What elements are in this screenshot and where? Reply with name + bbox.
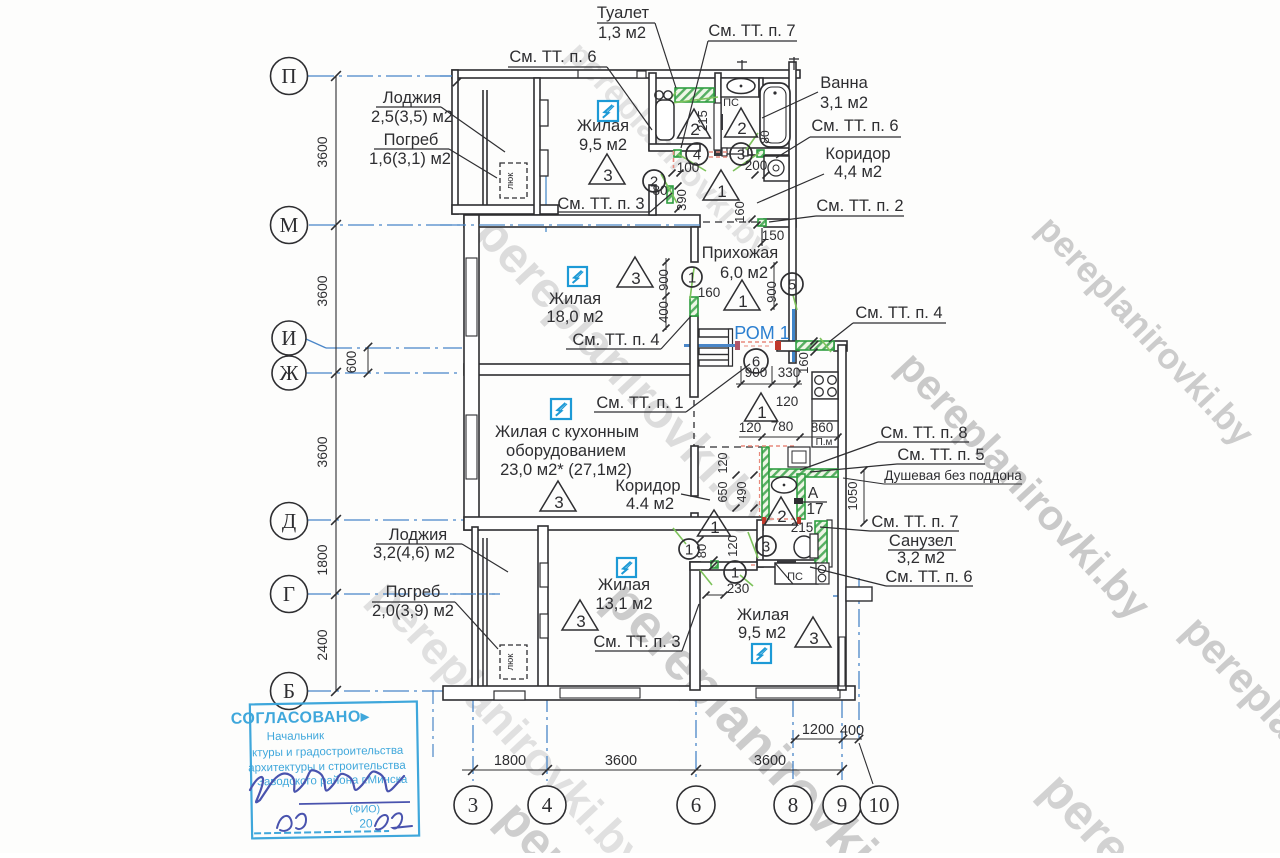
svg-text:1800: 1800 — [314, 544, 330, 575]
svg-text:оборудованием: оборудованием — [506, 442, 626, 460]
svg-text:ПС: ПС — [787, 571, 803, 583]
svg-text:2: 2 — [737, 119, 746, 138]
svg-text:люк: люк — [505, 172, 516, 190]
svg-text:3: 3 — [631, 269, 640, 288]
svg-text:Начальник: Начальник — [267, 730, 326, 743]
svg-text:120: 120 — [739, 420, 762, 435]
svg-text:Ванна: Ванна — [820, 74, 868, 92]
svg-text:3,1 м2: 3,1 м2 — [820, 94, 868, 112]
svg-text:1: 1 — [738, 292, 747, 311]
svg-text:Санузел: Санузел — [889, 532, 953, 550]
svg-text:650: 650 — [716, 482, 730, 503]
svg-text:См. ТТ. п. 4: См. ТТ. п. 4 — [572, 331, 659, 349]
svg-text:3: 3 — [554, 493, 563, 512]
svg-text:Прихожая: Прихожая — [702, 244, 778, 262]
svg-text:3: 3 — [576, 612, 585, 631]
svg-text:1: 1 — [717, 182, 726, 201]
svg-text:10: 10 — [869, 793, 890, 817]
svg-text:18,0 м2: 18,0 м2 — [546, 308, 603, 326]
svg-text:400: 400 — [656, 301, 671, 323]
svg-text:23,0 м2* (27,1м2): 23,0 м2* (27,1м2) — [500, 461, 632, 479]
svg-text:См. ТТ. п. 2: См. ТТ. п. 2 — [816, 197, 903, 215]
svg-text:И: И — [281, 326, 296, 350]
svg-text:Д: Д — [282, 509, 296, 533]
svg-text:2: 2 — [690, 120, 699, 139]
svg-text:3: 3 — [762, 538, 770, 555]
svg-text:См. ТТ. п. 7: См. ТТ. п. 7 — [708, 22, 795, 40]
svg-text:1800: 1800 — [494, 753, 526, 769]
svg-text:Погреб: Погреб — [386, 583, 441, 601]
svg-text:160: 160 — [698, 285, 721, 300]
svg-text:3,2(4,6) м2: 3,2(4,6) м2 — [373, 544, 455, 562]
svg-text:17: 17 — [806, 501, 823, 518]
svg-text:390: 390 — [674, 189, 689, 211]
svg-text:См. ТТ. п. 5: См. ТТ. п. 5 — [897, 446, 984, 464]
svg-text:900: 900 — [764, 281, 779, 303]
svg-text:3600: 3600 — [754, 753, 786, 769]
svg-text:См. ТТ. п. 6: См. ТТ. п. 6 — [509, 48, 596, 66]
svg-text:люк: люк — [505, 653, 516, 671]
svg-text:1: 1 — [685, 541, 693, 558]
svg-text:80: 80 — [758, 130, 772, 144]
svg-text:120: 120 — [716, 453, 730, 474]
svg-text:Жилая: Жилая — [549, 290, 601, 308]
svg-text:1: 1 — [688, 269, 696, 286]
svg-text:900: 900 — [656, 269, 671, 291]
svg-text:13,1 м2: 13,1 м2 — [595, 595, 652, 613]
svg-text:9: 9 — [837, 793, 848, 817]
svg-text:4: 4 — [542, 793, 553, 817]
svg-text:2,5(3,5) м2: 2,5(3,5) м2 — [371, 108, 453, 126]
svg-text:160: 160 — [796, 352, 811, 374]
svg-text:9,5 м2: 9,5 м2 — [738, 624, 786, 642]
svg-text:200: 200 — [745, 158, 768, 173]
svg-text:160: 160 — [732, 201, 747, 223]
svg-text:СОГЛАСОВАНО▸: СОГЛАСОВАНО▸ — [231, 708, 370, 727]
svg-text:2: 2 — [650, 173, 658, 190]
svg-text:См. ТТ. п. 6: См. ТТ. п. 6 — [811, 117, 898, 135]
svg-text:Ж: Ж — [280, 361, 299, 385]
svg-text:1050: 1050 — [845, 482, 860, 511]
svg-text:3: 3 — [809, 629, 818, 648]
svg-text:3: 3 — [468, 793, 479, 817]
svg-text:См. ТТ. п. 1: См. ТТ. п. 1 — [596, 394, 683, 412]
svg-text:Коридор: Коридор — [615, 477, 680, 495]
svg-text:4.4 м2: 4.4 м2 — [626, 495, 674, 513]
svg-text:6: 6 — [752, 353, 760, 370]
svg-text:120: 120 — [725, 535, 740, 557]
svg-text:600: 600 — [344, 351, 359, 374]
svg-text:П.м: П.м — [816, 437, 833, 448]
svg-text:4: 4 — [693, 146, 701, 163]
svg-text:1,6(3,1) м2: 1,6(3,1) м2 — [369, 150, 451, 168]
svg-text:Жилая с кухонным: Жилая с кухонным — [495, 423, 639, 441]
svg-text:2400: 2400 — [314, 629, 330, 660]
svg-text:6,0 м2: 6,0 м2 — [720, 264, 768, 282]
svg-text:1200: 1200 — [802, 722, 834, 738]
svg-text:3600: 3600 — [314, 275, 330, 306]
svg-text:М: М — [280, 213, 299, 237]
svg-text:490: 490 — [735, 482, 749, 503]
svg-text:4,4 м2: 4,4 м2 — [834, 163, 882, 181]
svg-text:860: 860 — [811, 420, 834, 435]
svg-text:См. ТТ. п. 4: См. ТТ. п. 4 — [855, 304, 942, 322]
svg-text:ПС: ПС — [723, 97, 739, 109]
svg-text:3600: 3600 — [605, 753, 637, 769]
svg-text:Жилая: Жилая — [577, 117, 629, 135]
svg-text:400: 400 — [840, 723, 864, 739]
svg-text:3,2 м2: 3,2 м2 — [897, 549, 945, 567]
svg-text:215: 215 — [791, 520, 814, 535]
svg-text:Жилая: Жилая — [737, 606, 789, 624]
svg-text:2,0(3,9) м2: 2,0(3,9) м2 — [372, 602, 454, 620]
svg-text:А: А — [808, 485, 819, 502]
svg-text:Жилая: Жилая — [598, 576, 650, 594]
svg-text:Коридор: Коридор — [825, 145, 890, 163]
svg-text:Туалет: Туалет — [597, 4, 650, 22]
svg-text:1: 1 — [757, 403, 766, 422]
svg-text:Б: Б — [283, 679, 295, 703]
svg-text:П: П — [281, 64, 296, 88]
svg-text:См. ТТ. п. 7: См. ТТ. п. 7 — [871, 513, 958, 531]
svg-text:8: 8 — [788, 793, 799, 817]
svg-text:9,5 м2: 9,5 м2 — [579, 136, 627, 154]
svg-text:6: 6 — [691, 793, 702, 817]
svg-text:(ФИО): (ФИО) — [349, 803, 380, 816]
svg-text:2: 2 — [777, 507, 786, 526]
svg-text:120: 120 — [776, 394, 799, 409]
svg-text:3600: 3600 — [314, 136, 330, 167]
svg-text:3: 3 — [603, 166, 612, 185]
svg-text:1,3 м2: 1,3 м2 — [598, 24, 646, 42]
svg-text:Душевая без поддона: Душевая без поддона — [884, 468, 1022, 483]
svg-text:См. ТТ. п. 3: См. ТТ. п. 3 — [557, 195, 644, 213]
svg-text:Лоджия: Лоджия — [383, 89, 441, 107]
svg-text:См. ТТ. п. 6: См. ТТ. п. 6 — [885, 568, 972, 586]
svg-text:См. ТТ. п. 3: См. ТТ. п. 3 — [593, 633, 680, 651]
svg-text:Г: Г — [283, 582, 295, 606]
svg-text:Лоджия: Лоджия — [389, 526, 447, 544]
svg-text:20: 20 — [359, 816, 373, 830]
svg-text:5: 5 — [788, 276, 796, 293]
svg-text:3600: 3600 — [314, 436, 330, 467]
svg-text:1: 1 — [710, 518, 719, 537]
svg-text:1: 1 — [731, 564, 739, 581]
svg-text:См. ТТ. п. 8: См. ТТ. п. 8 — [880, 424, 967, 442]
svg-text:3: 3 — [737, 146, 745, 163]
svg-text:Погреб: Погреб — [384, 131, 439, 149]
svg-text:РОМ 1: РОМ 1 — [734, 323, 790, 343]
